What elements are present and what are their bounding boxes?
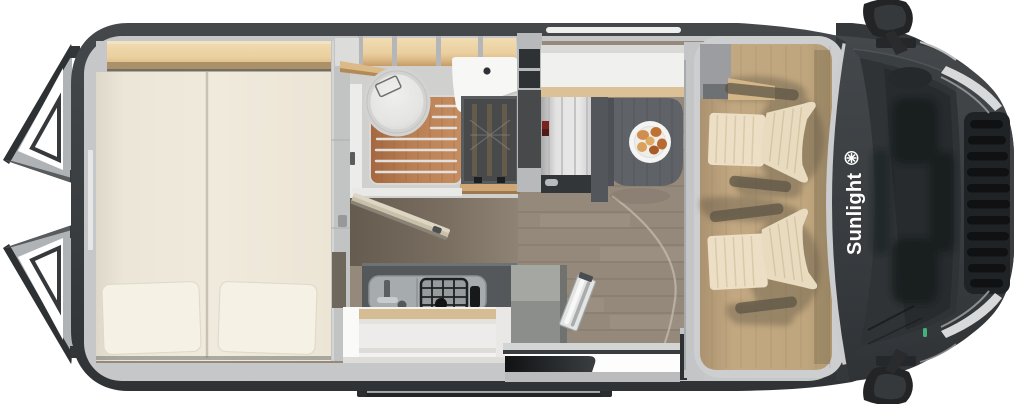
svg-text:Sunlight: Sunlight	[844, 173, 866, 255]
